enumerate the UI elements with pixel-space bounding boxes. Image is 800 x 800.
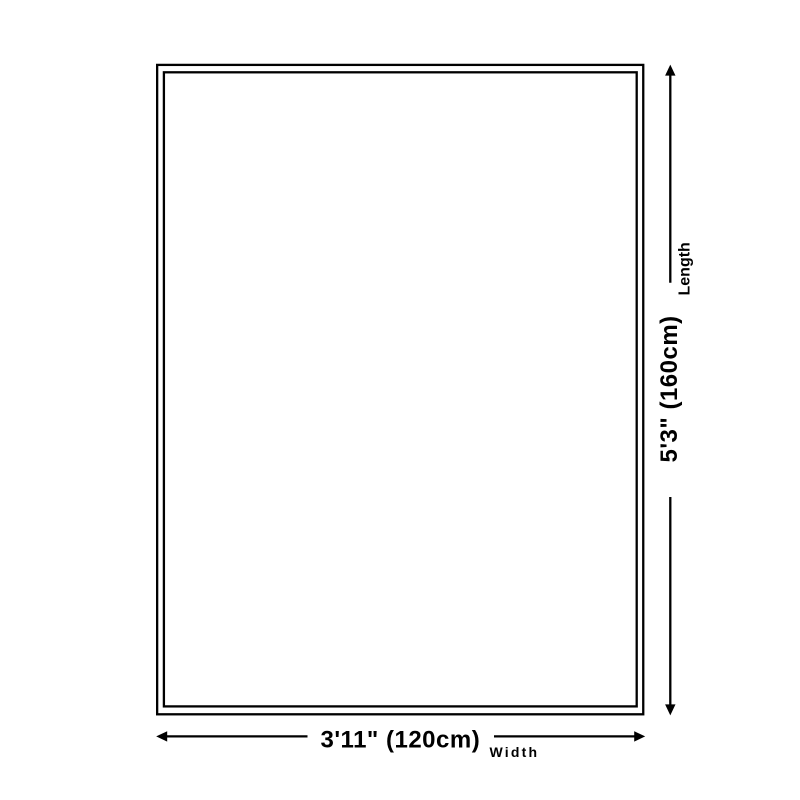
- svg-text:Width: Width: [490, 744, 540, 760]
- svg-text:5'3" (160cm): 5'3" (160cm): [656, 315, 683, 462]
- svg-text:Length: Length: [676, 242, 693, 295]
- svg-text:3'11" (120cm): 3'11" (120cm): [321, 727, 481, 754]
